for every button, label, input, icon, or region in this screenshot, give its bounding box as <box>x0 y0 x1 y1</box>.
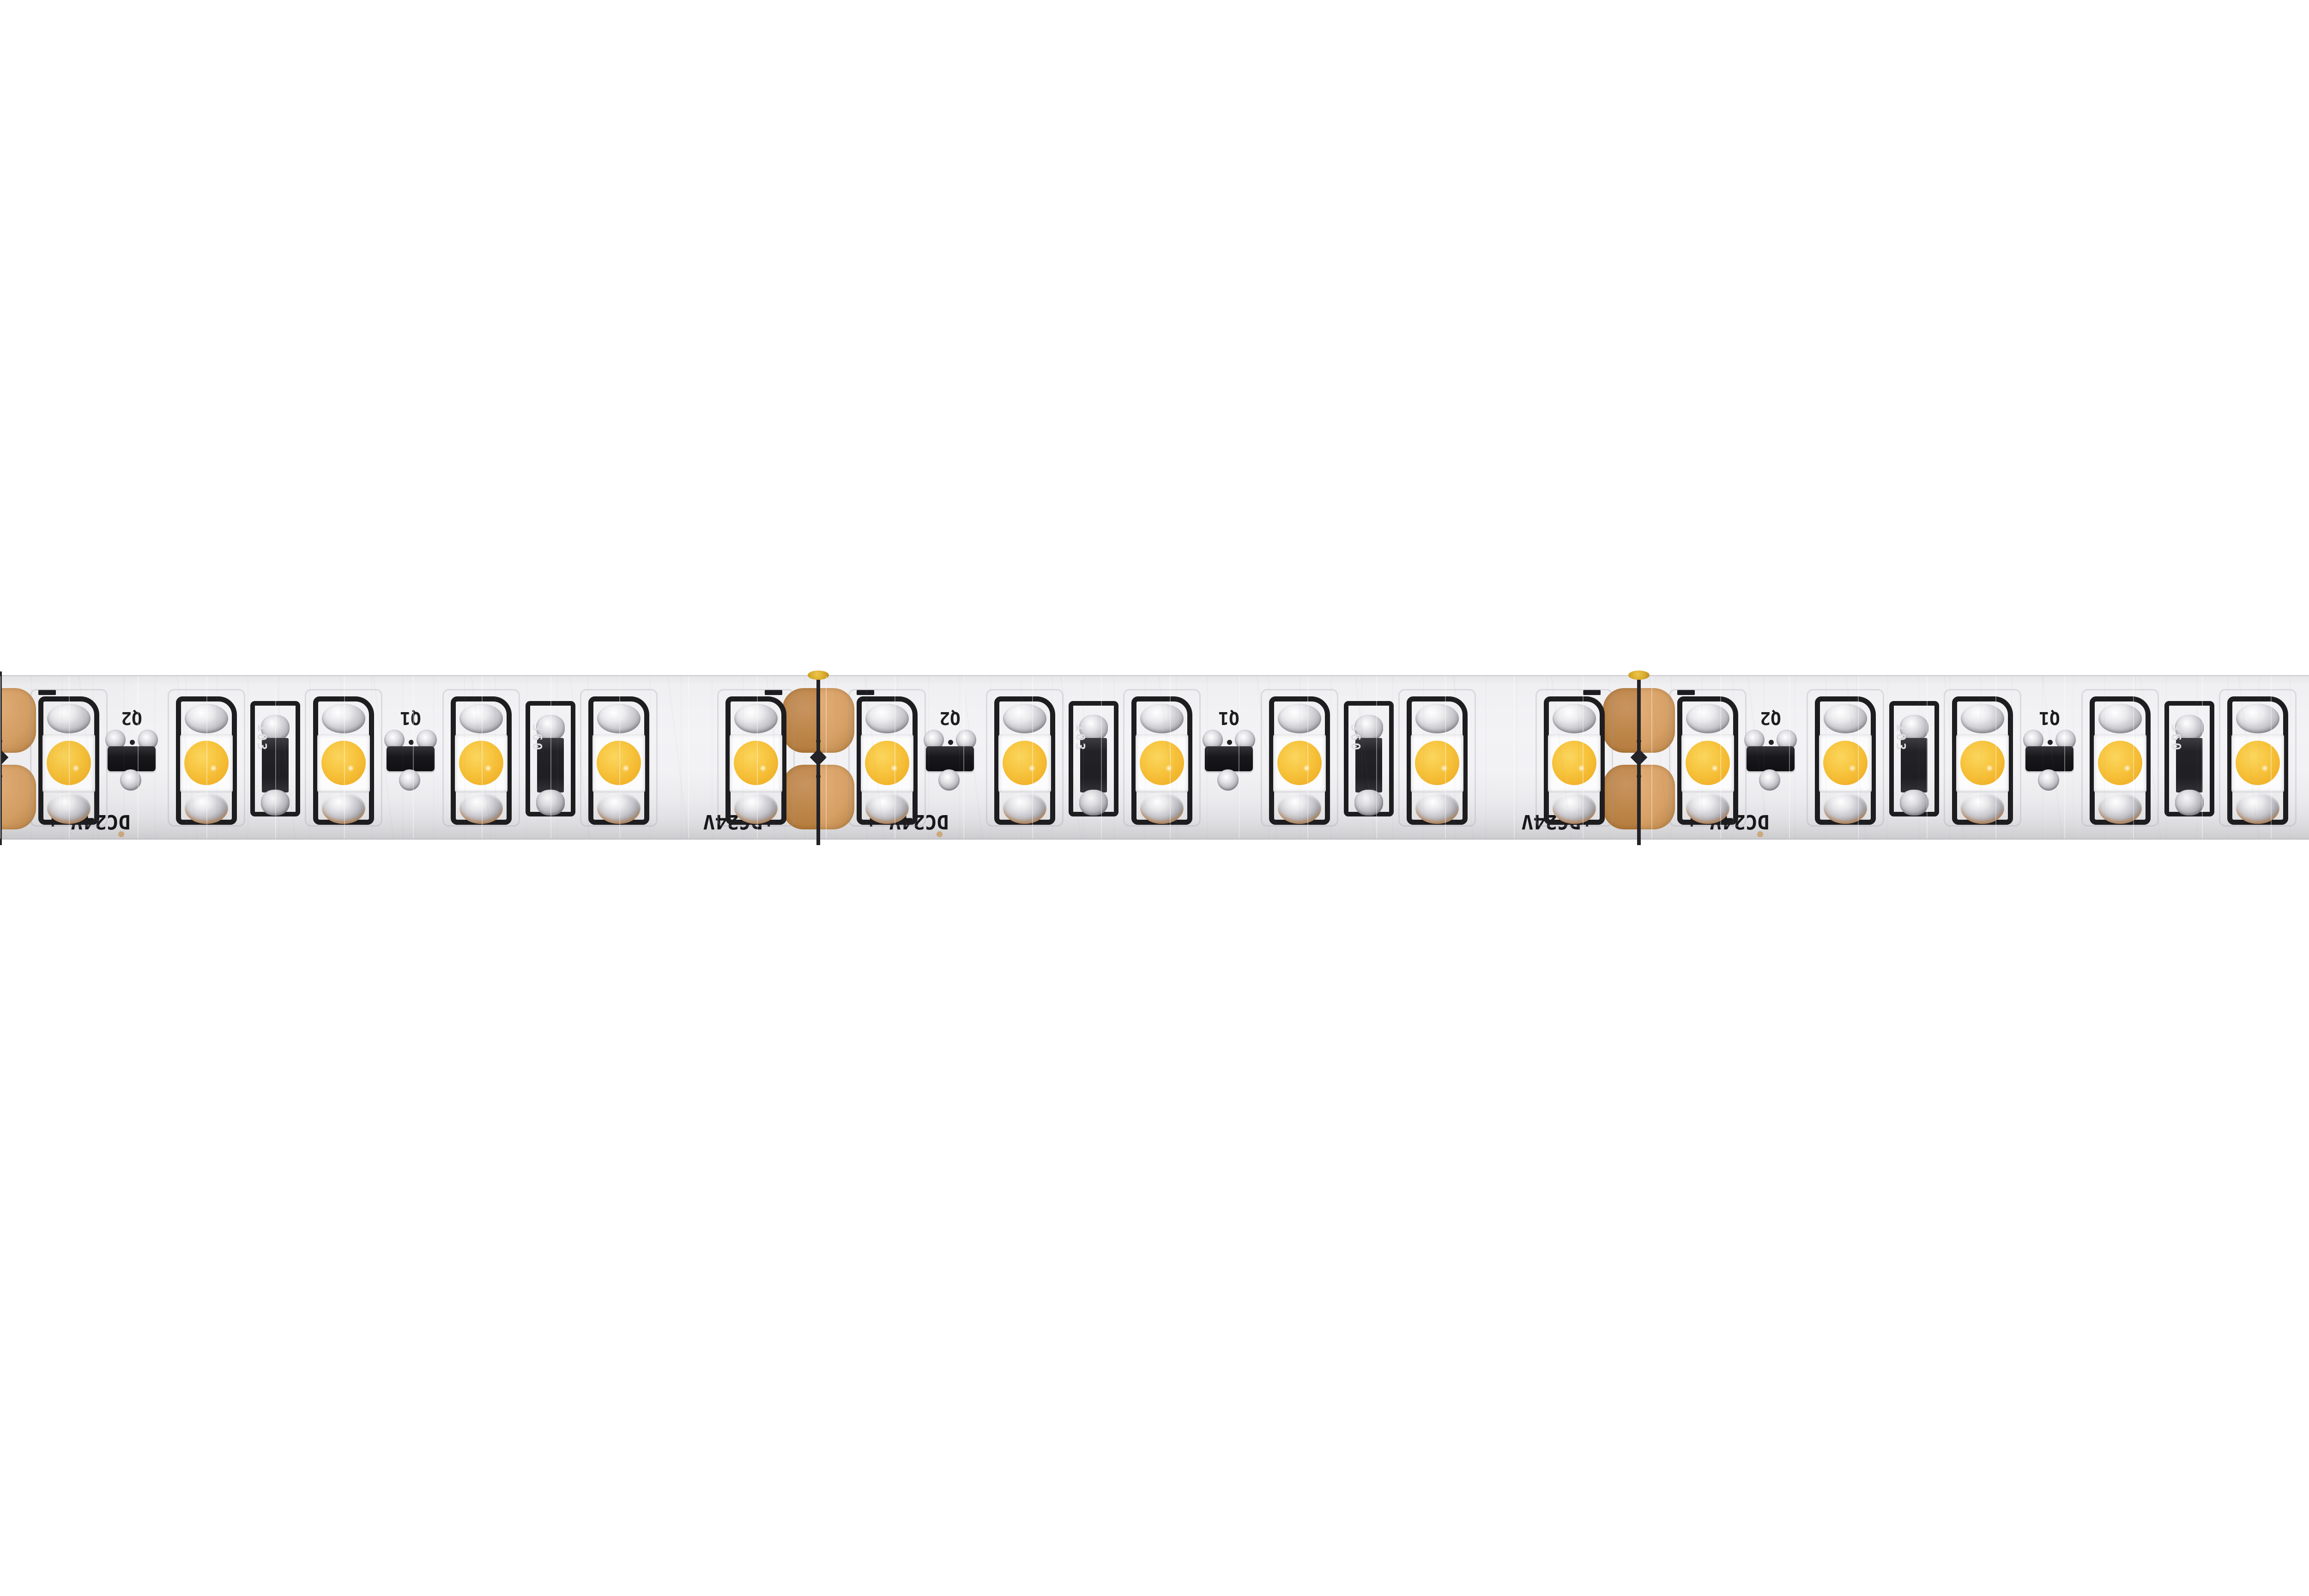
led-solder-bottom <box>1278 792 1321 824</box>
transistor: Q1 <box>2019 676 2080 840</box>
resistor-cap-bottom <box>536 790 565 816</box>
resistor-cap-bottom <box>2175 790 2204 816</box>
resistor-body: 360 <box>2176 738 2203 792</box>
transistor-label: Q2 <box>101 708 162 728</box>
transistor: Q1 <box>1198 676 1259 840</box>
transistor-body <box>2025 746 2073 771</box>
transistor: Q2 <box>919 676 980 840</box>
led-phosphor-circle <box>459 741 503 785</box>
led-phosphor-circle <box>2098 741 2142 785</box>
led-phosphor-circle <box>1686 741 1730 785</box>
resistor-body: 103 <box>262 738 289 792</box>
transistor-silkscreen-dot <box>1769 740 1774 745</box>
via-dot <box>1757 831 1763 837</box>
led-solder-top <box>459 704 503 733</box>
cut-dot <box>816 774 821 779</box>
led-solder-top <box>2098 704 2142 733</box>
resistor-value-label: 103 <box>255 724 269 752</box>
transistor-body <box>1205 746 1253 771</box>
led-phosphor-circle <box>597 741 641 785</box>
led-phosphor-circle <box>1960 741 2005 785</box>
led-solder-bottom <box>2098 792 2142 824</box>
resistor-cap-bottom <box>1079 790 1108 816</box>
transistor: Q1 <box>380 676 441 840</box>
flux-spot <box>1628 671 1650 680</box>
led-phosphor-circle <box>47 741 91 785</box>
led-phosphor-circle <box>1823 741 1868 785</box>
cut-dot <box>816 739 821 744</box>
photo-canvas: DC24V ++DC24VQ2103Q1360DC24V ++DC24VQ210… <box>0 0 2309 1596</box>
resistor: 360 <box>2164 676 2214 840</box>
led-solder-top <box>1961 704 2004 733</box>
led-phosphor-circle <box>1140 741 1184 785</box>
led-solder-bottom <box>1824 792 1867 824</box>
led-solder-bottom <box>47 792 91 824</box>
led-solder-top <box>865 704 909 733</box>
led-solder-bottom <box>1140 792 1184 824</box>
transistor-leg-bottom <box>1217 769 1239 791</box>
via-dot <box>937 831 943 837</box>
smd-led <box>580 676 658 840</box>
led-solder-bottom <box>865 792 909 824</box>
smd-led <box>2219 676 2297 840</box>
resistor-body: 360 <box>1355 738 1382 792</box>
led-solder-top <box>1140 704 1184 733</box>
led-solder-top <box>1686 704 1729 733</box>
smd-led <box>30 676 108 840</box>
led-phosphor-circle <box>2236 741 2280 785</box>
led-solder-top <box>47 704 91 733</box>
led-solder-bottom <box>1961 792 2004 824</box>
transistor-silkscreen-dot <box>409 740 414 745</box>
led-solder-top <box>1415 704 1459 733</box>
transistor-silkscreen-dot <box>2048 740 2053 745</box>
resistor: 360 <box>526 676 575 840</box>
smd-led <box>1535 676 1613 840</box>
transistor-body <box>108 746 156 771</box>
resistor-cap-bottom <box>261 790 290 816</box>
resistor-body: 360 <box>537 738 564 792</box>
led-solder-top <box>2236 704 2279 733</box>
led-solder-bottom <box>2236 792 2279 824</box>
led-solder-top <box>1278 704 1321 733</box>
transistor-leg-bottom <box>399 769 420 791</box>
resistor-cap-bottom <box>1900 790 1928 816</box>
smd-led <box>848 676 926 840</box>
led-solder-top <box>734 704 778 733</box>
transistor-body <box>926 746 974 771</box>
led-solder-top <box>1003 704 1046 733</box>
smd-led <box>2081 676 2159 840</box>
resistor: 103 <box>1889 676 1939 840</box>
led-solder-bottom <box>185 792 228 824</box>
led-solder-top <box>1553 704 1596 733</box>
led-phosphor-circle <box>1415 741 1459 785</box>
led-solder-bottom <box>597 792 641 824</box>
led-solder-bottom <box>1415 792 1459 824</box>
resistor-value-label: 103 <box>1073 724 1088 752</box>
led-phosphor-circle <box>1003 741 1047 785</box>
led-solder-bottom <box>734 792 778 824</box>
transistor-silkscreen-dot <box>130 740 135 745</box>
resistor-cap-bottom <box>1354 790 1383 816</box>
led-phosphor-circle <box>321 741 366 785</box>
transistor: Q2 <box>1740 676 1801 840</box>
transistor-body <box>1747 746 1795 771</box>
smd-led <box>1398 676 1476 840</box>
led-solder-bottom <box>322 792 365 824</box>
smd-led <box>1669 676 1747 840</box>
resistor-value-label: 360 <box>2169 724 2183 752</box>
led-phosphor-circle <box>1277 741 1322 785</box>
transistor-leg-bottom <box>1759 769 1780 791</box>
smd-led <box>986 676 1064 840</box>
transistor-label: Q1 <box>380 708 441 728</box>
smd-led <box>442 676 520 840</box>
smd-led <box>1261 676 1338 840</box>
resistor-body: 103 <box>1080 738 1107 792</box>
cut-dot <box>1637 774 1641 779</box>
transistor-silkscreen-dot <box>1227 740 1232 745</box>
led-solder-bottom <box>1686 792 1729 824</box>
led-solder-bottom <box>1553 792 1596 824</box>
led-solder-top <box>185 704 228 733</box>
smd-led <box>1944 676 2021 840</box>
resistor: 103 <box>250 676 300 840</box>
resistor-value-label: 360 <box>530 724 544 752</box>
led-phosphor-circle <box>734 741 778 785</box>
flux-spot <box>808 671 829 680</box>
smd-led <box>168 676 245 840</box>
transistor-leg-bottom <box>2038 769 2059 791</box>
led-solder-bottom <box>459 792 503 824</box>
resistor-value-label: 360 <box>1348 724 1363 752</box>
led-solder-top <box>322 704 365 733</box>
resistor-value-label: 103 <box>1894 724 1908 752</box>
transistor-label: Q1 <box>1198 708 1259 728</box>
transistor-body <box>387 746 435 771</box>
via-dot <box>118 831 124 837</box>
led-solder-top <box>597 704 641 733</box>
cut-dot <box>1637 739 1641 744</box>
resistor: 103 <box>1069 676 1118 840</box>
led-phosphor-circle <box>1552 741 1596 785</box>
transistor: Q2 <box>101 676 162 840</box>
led-solder-top <box>1824 704 1867 733</box>
components-layer: DC24V ++DC24VQ2103Q1360DC24V ++DC24VQ210… <box>0 676 2309 839</box>
transistor-silkscreen-dot <box>948 740 953 745</box>
led-strip: DC24V ++DC24VQ2103Q1360DC24V ++DC24VQ210… <box>0 675 2309 840</box>
resistor: 360 <box>1344 676 1394 840</box>
smd-led <box>1807 676 1884 840</box>
transistor-leg-bottom <box>938 769 960 791</box>
led-phosphor-circle <box>184 741 229 785</box>
smd-led <box>305 676 382 840</box>
smd-led <box>1123 676 1201 840</box>
smd-led <box>717 676 795 840</box>
transistor-label: Q2 <box>919 708 980 728</box>
led-solder-bottom <box>1003 792 1046 824</box>
transistor-label: Q2 <box>1740 708 1801 728</box>
led-phosphor-circle <box>865 741 909 785</box>
transistor-label: Q1 <box>2019 708 2080 728</box>
transistor-leg-bottom <box>120 769 141 791</box>
resistor-body: 103 <box>1901 738 1928 792</box>
